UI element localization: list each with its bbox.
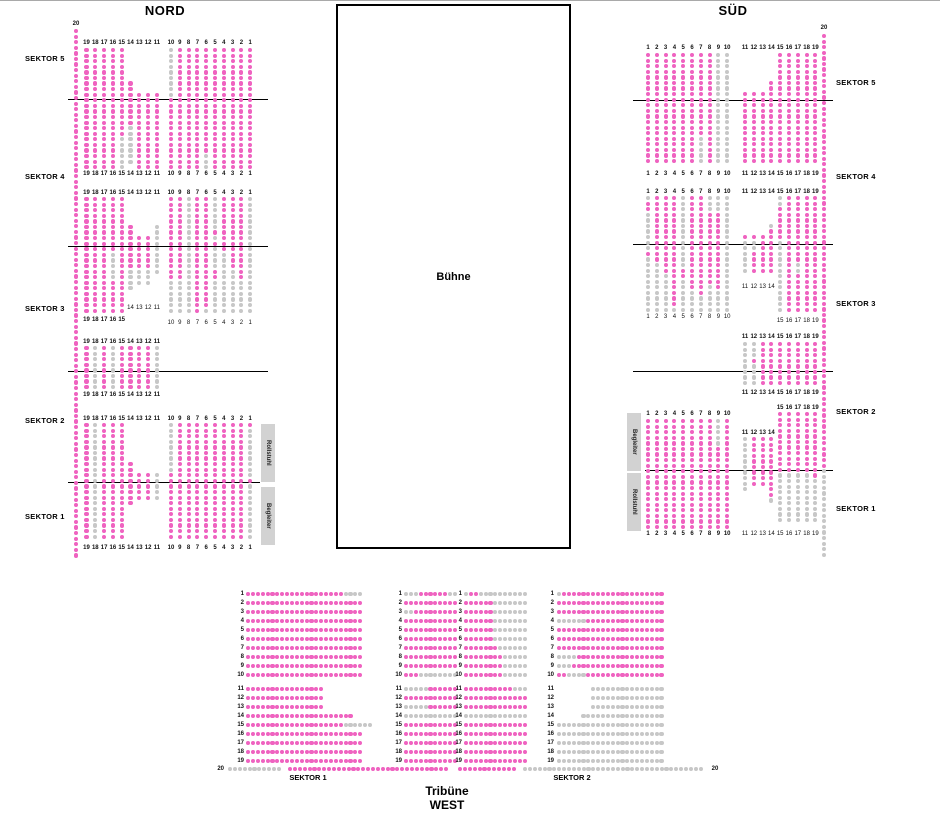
seat[interactable] [169, 154, 173, 158]
seat[interactable] [84, 121, 88, 125]
seat[interactable] [314, 637, 318, 641]
seat[interactable] [796, 64, 800, 68]
seat[interactable] [74, 113, 78, 117]
seat[interactable] [280, 673, 284, 677]
seat[interactable] [822, 118, 826, 122]
seat[interactable] [314, 723, 318, 727]
seat[interactable] [146, 473, 150, 477]
seat[interactable] [681, 109, 685, 113]
seat[interactable] [474, 637, 478, 641]
seat[interactable] [761, 370, 765, 374]
seat[interactable] [178, 208, 182, 212]
seat[interactable] [708, 213, 712, 217]
seat[interactable] [787, 445, 791, 449]
seat[interactable] [640, 637, 644, 641]
seat[interactable] [195, 473, 199, 477]
seat[interactable] [479, 705, 483, 709]
seat[interactable] [493, 687, 497, 691]
seat[interactable] [261, 673, 265, 677]
seat[interactable] [796, 196, 800, 200]
seat[interactable] [420, 767, 424, 771]
seat[interactable] [102, 126, 106, 130]
seat[interactable] [280, 628, 284, 632]
seat[interactable] [120, 535, 124, 539]
seat[interactable] [93, 115, 97, 119]
seat[interactable] [195, 54, 199, 58]
seat[interactable] [239, 468, 243, 472]
seat[interactable] [222, 529, 226, 533]
seat[interactable] [822, 62, 826, 66]
seat[interactable] [222, 496, 226, 500]
seat[interactable] [493, 723, 497, 727]
seat[interactable] [664, 153, 668, 157]
seat[interactable] [178, 214, 182, 218]
seat[interactable] [348, 759, 352, 763]
seat[interactable] [664, 207, 668, 211]
seat[interactable] [690, 59, 694, 63]
seat[interactable] [74, 141, 78, 145]
seat[interactable] [464, 601, 468, 605]
seat[interactable] [699, 525, 703, 529]
seat[interactable] [433, 741, 437, 745]
seat[interactable] [805, 159, 809, 163]
seat[interactable] [300, 732, 304, 736]
seat[interactable] [424, 619, 428, 623]
seat[interactable] [699, 59, 703, 63]
seat[interactable] [699, 131, 703, 135]
seat[interactable] [128, 352, 132, 356]
seat[interactable] [813, 207, 817, 211]
seat[interactable] [102, 501, 106, 505]
seat[interactable] [222, 98, 226, 102]
seat[interactable] [213, 81, 217, 85]
seat[interactable] [74, 425, 78, 429]
seat[interactable] [699, 196, 703, 200]
seat[interactable] [419, 759, 423, 763]
seat[interactable] [672, 142, 676, 146]
seat[interactable] [769, 493, 773, 497]
seat[interactable] [213, 434, 217, 438]
seat[interactable] [752, 137, 756, 141]
seat[interactable] [187, 59, 191, 63]
seat[interactable] [231, 81, 235, 85]
seat[interactable] [523, 732, 527, 736]
seat[interactable] [295, 637, 299, 641]
seat[interactable] [102, 87, 106, 91]
seat[interactable] [699, 109, 703, 113]
seat[interactable] [655, 246, 659, 250]
seat[interactable] [479, 628, 483, 632]
seat[interactable] [523, 741, 527, 745]
seat[interactable] [111, 48, 115, 52]
seat[interactable] [743, 92, 747, 96]
seat[interactable] [725, 452, 729, 456]
seat[interactable] [74, 157, 78, 161]
seat[interactable] [169, 501, 173, 505]
seat[interactable] [93, 203, 97, 207]
seat[interactable] [813, 241, 817, 245]
seat[interactable] [231, 87, 235, 91]
seat[interactable] [805, 445, 809, 449]
seat[interactable] [646, 525, 650, 529]
seat[interactable] [266, 646, 270, 650]
seat[interactable] [187, 65, 191, 69]
seat[interactable] [716, 252, 720, 256]
seat[interactable] [787, 342, 791, 346]
seat[interactable] [169, 275, 173, 279]
seat[interactable] [640, 619, 644, 623]
seat[interactable] [146, 352, 150, 356]
seat[interactable] [672, 207, 676, 211]
seat[interactable] [761, 348, 765, 352]
seat[interactable] [348, 732, 352, 736]
seat[interactable] [761, 137, 765, 141]
seat[interactable] [314, 696, 318, 700]
seat[interactable] [84, 496, 88, 500]
seat[interactable] [761, 114, 765, 118]
seat[interactable] [178, 479, 182, 483]
seat[interactable] [178, 507, 182, 511]
seat[interactable] [409, 646, 413, 650]
seat[interactable] [319, 601, 323, 605]
seat[interactable] [428, 750, 432, 754]
seat[interactable] [261, 601, 265, 605]
seat[interactable] [805, 126, 809, 130]
seat[interactable] [822, 335, 826, 339]
seat[interactable] [305, 732, 309, 736]
seat[interactable] [178, 523, 182, 527]
seat[interactable] [102, 143, 106, 147]
seat[interactable] [699, 447, 703, 451]
seat[interactable] [111, 507, 115, 511]
seat[interactable] [813, 468, 817, 472]
seat[interactable] [137, 484, 141, 488]
seat[interactable] [681, 452, 685, 456]
seat[interactable] [699, 285, 703, 289]
seat[interactable] [708, 59, 712, 63]
seat[interactable] [822, 313, 826, 317]
seat[interactable] [664, 224, 668, 228]
seat[interactable] [195, 160, 199, 164]
seat[interactable] [591, 592, 595, 596]
seat[interactable] [120, 468, 124, 472]
seat[interactable] [581, 628, 585, 632]
seat[interactable] [787, 153, 791, 157]
seat[interactable] [646, 519, 650, 523]
seat[interactable] [655, 196, 659, 200]
seat[interactable] [690, 525, 694, 529]
seat[interactable] [586, 601, 590, 605]
seat[interactable] [334, 664, 338, 668]
seat[interactable] [620, 637, 624, 641]
seat[interactable] [630, 646, 634, 650]
seat[interactable] [769, 120, 773, 124]
seat[interactable] [601, 628, 605, 632]
seat[interactable] [640, 610, 644, 614]
seat[interactable] [251, 610, 255, 614]
seat[interactable] [128, 368, 132, 372]
seat[interactable] [513, 759, 517, 763]
seat[interactable] [787, 92, 791, 96]
seat[interactable] [146, 104, 150, 108]
seat[interactable] [690, 235, 694, 239]
seat[interactable] [822, 51, 826, 55]
seat[interactable] [428, 732, 432, 736]
seat[interactable] [248, 104, 252, 108]
seat[interactable] [488, 646, 492, 650]
seat[interactable] [681, 430, 685, 434]
seat[interactable] [248, 59, 252, 63]
seat[interactable] [690, 148, 694, 152]
seat[interactable] [787, 296, 791, 300]
seat[interactable] [464, 646, 468, 650]
seat[interactable] [761, 448, 765, 452]
seat[interactable] [344, 637, 348, 641]
seat[interactable] [93, 87, 97, 91]
seat[interactable] [787, 468, 791, 472]
seat[interactable] [761, 109, 765, 113]
seat[interactable] [414, 646, 418, 650]
seat[interactable] [484, 687, 488, 691]
seat[interactable] [231, 507, 235, 511]
seat[interactable] [557, 628, 561, 632]
seat[interactable] [195, 203, 199, 207]
seat[interactable] [102, 496, 106, 500]
seat[interactable] [137, 242, 141, 246]
seat[interactable] [204, 529, 208, 533]
seat[interactable] [339, 610, 343, 614]
seat[interactable] [231, 462, 235, 466]
seat[interactable] [344, 601, 348, 605]
seat[interactable] [469, 723, 473, 727]
seat[interactable] [146, 363, 150, 367]
seat[interactable] [438, 664, 442, 668]
seat[interactable] [270, 687, 274, 691]
seat[interactable] [295, 759, 299, 763]
seat[interactable] [204, 429, 208, 433]
seat[interactable] [155, 115, 159, 119]
seat[interactable] [84, 219, 88, 223]
seat[interactable] [84, 104, 88, 108]
seat[interactable] [309, 723, 313, 727]
seat[interactable] [796, 53, 800, 57]
seat[interactable] [74, 35, 78, 39]
seat[interactable] [309, 601, 313, 605]
seat[interactable] [822, 430, 826, 434]
seat[interactable] [128, 501, 132, 505]
seat[interactable] [796, 462, 800, 466]
seat[interactable] [319, 741, 323, 745]
seat[interactable] [572, 628, 576, 632]
seat[interactable] [120, 490, 124, 494]
seat[interactable] [361, 767, 365, 771]
seat[interactable] [178, 535, 182, 539]
seat[interactable] [102, 109, 106, 113]
seat[interactable] [655, 601, 659, 605]
seat[interactable] [74, 358, 78, 362]
seat[interactable] [805, 359, 809, 363]
seat[interactable] [681, 425, 685, 429]
seat[interactable] [231, 197, 235, 201]
seat[interactable] [813, 342, 817, 346]
seat[interactable] [769, 353, 773, 357]
seat[interactable] [822, 218, 826, 222]
seat[interactable] [128, 379, 132, 383]
seat[interactable] [84, 165, 88, 169]
seat[interactable] [290, 619, 294, 623]
seat[interactable] [645, 601, 649, 605]
seat[interactable] [404, 741, 408, 745]
seat[interactable] [409, 759, 413, 763]
seat[interactable] [761, 235, 765, 239]
seat[interactable] [261, 723, 265, 727]
seat[interactable] [178, 104, 182, 108]
seat[interactable] [404, 628, 408, 632]
seat[interactable] [822, 240, 826, 244]
seat[interactable] [572, 592, 576, 596]
seat[interactable] [319, 723, 323, 727]
seat[interactable] [761, 482, 765, 486]
seat[interactable] [813, 308, 817, 312]
seat[interactable] [270, 610, 274, 614]
seat[interactable] [295, 610, 299, 614]
seat[interactable] [128, 258, 132, 262]
seat[interactable] [493, 759, 497, 763]
seat[interactable] [329, 610, 333, 614]
seat[interactable] [128, 253, 132, 257]
seat[interactable] [655, 447, 659, 451]
seat[interactable] [664, 252, 668, 256]
seat[interactable] [275, 750, 279, 754]
seat[interactable] [708, 53, 712, 57]
seat[interactable] [187, 143, 191, 147]
seat[interactable] [664, 458, 668, 462]
seat[interactable] [295, 723, 299, 727]
seat[interactable] [708, 280, 712, 284]
seat[interactable] [503, 750, 507, 754]
seat[interactable] [74, 219, 78, 223]
seat[interactable] [484, 705, 488, 709]
seat[interactable] [120, 76, 124, 80]
seat[interactable] [93, 236, 97, 240]
seat[interactable] [778, 81, 782, 85]
seat[interactable] [309, 655, 313, 659]
seat[interactable] [805, 75, 809, 79]
seat[interactable] [822, 279, 826, 283]
seat[interactable] [74, 397, 78, 401]
seat[interactable] [319, 750, 323, 754]
seat[interactable] [822, 196, 826, 200]
seat[interactable] [74, 191, 78, 195]
seat[interactable] [111, 197, 115, 201]
seat[interactable] [275, 723, 279, 727]
seat[interactable] [74, 525, 78, 529]
seat[interactable] [102, 281, 106, 285]
seat[interactable] [222, 434, 226, 438]
seat[interactable] [319, 696, 323, 700]
seat[interactable] [275, 628, 279, 632]
seat[interactable] [74, 313, 78, 317]
seat[interactable] [664, 196, 668, 200]
seat[interactable] [305, 592, 309, 596]
seat[interactable] [690, 109, 694, 113]
seat[interactable] [805, 263, 809, 267]
seat[interactable] [518, 759, 522, 763]
seat[interactable] [102, 523, 106, 527]
seat[interactable] [222, 70, 226, 74]
seat[interactable] [645, 637, 649, 641]
seat[interactable] [329, 646, 333, 650]
seat[interactable] [635, 664, 639, 668]
seat[interactable] [213, 512, 217, 516]
seat[interactable] [503, 732, 507, 736]
seat[interactable] [74, 202, 78, 206]
seat[interactable] [120, 379, 124, 383]
seat[interactable] [213, 148, 217, 152]
seat[interactable] [761, 148, 765, 152]
seat[interactable] [120, 518, 124, 522]
seat[interactable] [761, 465, 765, 469]
seat[interactable] [195, 479, 199, 483]
seat[interactable] [716, 452, 720, 456]
seat[interactable] [178, 529, 182, 533]
seat[interactable] [339, 601, 343, 605]
seat[interactable] [120, 346, 124, 350]
seat[interactable] [251, 705, 255, 709]
seat[interactable] [146, 258, 150, 262]
seat[interactable] [334, 759, 338, 763]
seat[interactable] [424, 741, 428, 745]
seat[interactable] [681, 114, 685, 118]
seat[interactable] [655, 120, 659, 124]
seat[interactable] [358, 732, 362, 736]
seat[interactable] [796, 126, 800, 130]
seat[interactable] [231, 225, 235, 229]
seat[interactable] [84, 490, 88, 494]
seat[interactable] [664, 137, 668, 141]
seat[interactable] [102, 76, 106, 80]
seat[interactable] [664, 497, 668, 501]
seat[interactable] [708, 224, 712, 228]
seat[interactable] [251, 655, 255, 659]
seat[interactable] [655, 148, 659, 152]
seat[interactable] [672, 508, 676, 512]
seat[interactable] [111, 496, 115, 500]
seat[interactable] [120, 65, 124, 69]
seat[interactable] [93, 65, 97, 69]
seat[interactable] [74, 419, 78, 423]
seat[interactable] [725, 525, 729, 529]
seat[interactable] [248, 109, 252, 113]
seat[interactable] [74, 380, 78, 384]
seat[interactable] [813, 457, 817, 461]
seat[interactable] [822, 140, 826, 144]
seat[interactable] [681, 519, 685, 523]
seat[interactable] [84, 468, 88, 472]
seat[interactable] [285, 637, 289, 641]
seat[interactable] [111, 462, 115, 466]
seat[interactable] [805, 342, 809, 346]
seat[interactable] [428, 619, 432, 623]
seat[interactable] [625, 655, 629, 659]
seat[interactable] [424, 610, 428, 614]
seat[interactable] [690, 114, 694, 118]
seat[interactable] [195, 137, 199, 141]
seat[interactable] [725, 508, 729, 512]
seat[interactable] [601, 610, 605, 614]
seat[interactable] [787, 418, 791, 422]
seat[interactable] [270, 637, 274, 641]
